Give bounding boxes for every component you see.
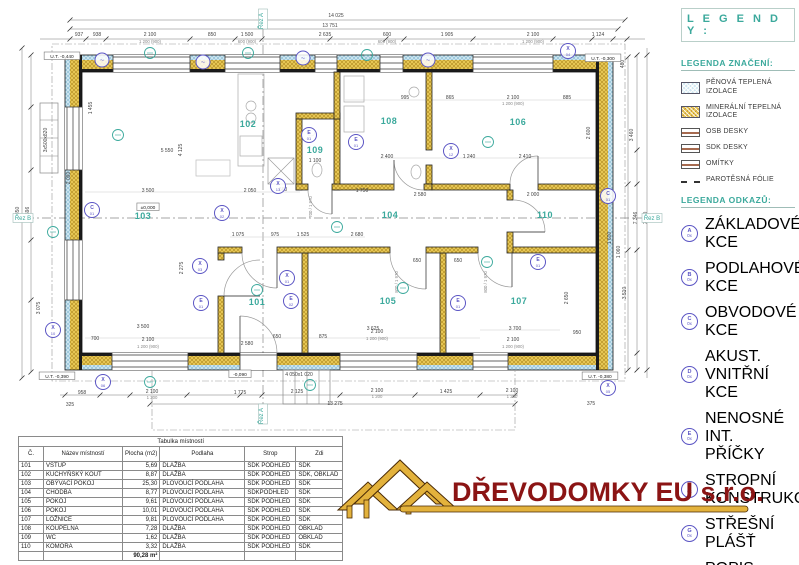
dim-label: 1 500 [241, 32, 254, 38]
table-cell: DLAŽBA [160, 471, 245, 480]
table-cell: POKOJ [44, 507, 123, 516]
dim-label: 700 / 1 970 [308, 196, 313, 218]
dim-label: 2 100 [507, 337, 520, 343]
dim-label: 2 600 [586, 127, 592, 140]
table-cell: 106 [19, 507, 44, 516]
dim-label: 2 635 [319, 32, 332, 38]
dim-label: 3 500 [142, 188, 155, 194]
legend-marks-list: PĚNOVÁ TEPLENÁ IZOLACEMINERÁLNÍ TEPELNÁ … [681, 79, 795, 185]
dim-label: 800 / 1 970 [394, 271, 399, 293]
terrace-line [152, 370, 515, 430]
door-arc [394, 160, 424, 190]
legend-item: PĚNOVÁ TEPLENÁ IZOLACE [681, 79, 795, 97]
company-logo: DŘEVODOMKY EU s.r.o. [330, 448, 795, 558]
table-cell: 5,69 [123, 462, 160, 471]
legend-refs-heading: LEGENDA ODKAZŮ: [681, 195, 795, 208]
dim-label: 700 [91, 336, 100, 342]
floor-plan-drawing: 14 02513 7519379382 1008501 5002 6356001… [0, 0, 680, 440]
dim-label: 1 200 (900) [137, 344, 160, 349]
ref-circle-icon: A0x [681, 225, 698, 242]
dim-label: 1 200 (900) [502, 344, 525, 349]
table-cell: KUCHYŇSKÝ KOUT [44, 471, 123, 480]
table-row: 107LOŽNICE9,81PLOVOUCÍ PODLAHASDK PODHLE… [19, 516, 343, 525]
table-header: Č. [19, 447, 44, 462]
svg-text:~: ~ [100, 58, 104, 65]
svg-text:01: 01 [90, 211, 95, 216]
table-cell: SDK PODHLED [245, 525, 296, 534]
dim-label: 600 [383, 32, 392, 38]
dim-label: 885 [563, 95, 572, 101]
dim-label: 1 525 [297, 232, 310, 238]
elevation-label: U.T. -0,380 [588, 374, 612, 380]
table-cell: 109 [19, 534, 44, 543]
table-cell: 1,62 [123, 534, 160, 543]
table-row: 110KOMORA3,32DLAŽBASDK PODHLEDSDK [19, 543, 343, 552]
svg-text:13: 13 [276, 187, 281, 192]
dim-label: 1 425 [440, 389, 453, 395]
dim-label: 5 550 [161, 148, 174, 154]
table-cell: VSTUP [44, 462, 123, 471]
svg-text:05: 05 [606, 389, 611, 394]
table-cell: PLOVOUCÍ PODLAHA [160, 507, 245, 516]
legend-ref-item: X0xPOPIS PRVKŮ [681, 560, 795, 565]
dim-label: 600 (900) [378, 39, 397, 44]
dim-label: 3 500 [137, 324, 150, 330]
table-header: Strop [245, 447, 296, 462]
legend-ref-label: PODLAHOVÉ KCE [705, 260, 799, 296]
elevation-label: -0,090 [233, 372, 247, 378]
dim-label: 1 060 [616, 246, 622, 259]
dim-label: 1 600 [607, 232, 613, 245]
table-cell: SDK PODHLED [245, 507, 296, 516]
svg-text:~: ~ [201, 60, 205, 67]
table-cell: 105 [19, 498, 44, 507]
table-cell: 8,87 [123, 471, 160, 480]
table-cell: SDKPODHLED [245, 489, 296, 498]
table-cell: 108 [19, 525, 44, 534]
room-number: 101 [249, 297, 266, 307]
door-arc [242, 253, 277, 288]
legend-item-label: SDK DESKY [706, 144, 748, 153]
dim-label: 2 100 [527, 32, 540, 38]
legend-item-label: OMÍTKY [706, 160, 734, 169]
dim-label: 1 200 [147, 395, 158, 400]
company-name: DŘEVODOMKY EU s.r.o. [452, 476, 764, 507]
table-row: 104CHODBA8,77PLOVOUCÍ PODLAHASDKPODHLEDS… [19, 489, 343, 498]
legend-ref-item: B0xPODLAHOVÉ KCE [681, 260, 795, 296]
table-cell: 7,28 [123, 525, 160, 534]
legend-ref-item: A0xZÁKLADOVÉ KCE [681, 216, 795, 252]
table-cell: DLAŽBA [160, 543, 245, 552]
sw-line-icon [681, 128, 700, 137]
table-cell: WC [44, 534, 123, 543]
room-number: 102 [240, 119, 257, 129]
dim-label: 4 125 [178, 144, 184, 157]
dim-label: 1 075 [232, 232, 245, 238]
section-label: Řez A [257, 408, 265, 424]
door-arc [510, 156, 538, 184]
dim-label: 1 455 [88, 102, 94, 115]
room-number: 103 [135, 211, 152, 221]
table-cell: KOUPELNA [44, 525, 123, 534]
dim-label: 800 / 1 970 [483, 271, 488, 293]
table-cell: 103 [19, 480, 44, 489]
dim-label: 865 [446, 95, 455, 101]
dim-label: 14 025 [328, 13, 344, 19]
legend-ref-label: ZÁKLADOVÉ KCE [705, 216, 799, 252]
dim-label: 875 [319, 334, 328, 340]
table-cell [160, 552, 245, 561]
room-number: 105 [380, 296, 397, 306]
svg-text:02: 02 [220, 214, 225, 219]
table-cell: SDK PODHLED [245, 480, 296, 489]
table-cell: 9,81 [123, 516, 160, 525]
svg-text:06: 06 [101, 383, 106, 388]
table-cell: POKOJ [44, 498, 123, 507]
dim-label: 1 124 [592, 32, 605, 38]
svg-text:01: 01 [285, 279, 290, 284]
table-cell: KOMORA [44, 543, 123, 552]
table-caption: Tabulka místností [19, 437, 343, 447]
svg-text:12: 12 [449, 152, 454, 157]
svg-text:01: 01 [354, 143, 359, 148]
dim-label: 1 200 [372, 394, 383, 399]
table-cell: 101 [19, 462, 44, 471]
dim-label: 2 090 [66, 172, 72, 185]
elevation-label: ±0,000 [141, 205, 156, 211]
section-label: Řez A [257, 13, 265, 29]
dim-label: 958 [78, 390, 87, 396]
dim-label: 995 [401, 95, 410, 101]
legend-item-label: OSB DESKY [706, 128, 748, 137]
table-cell: PLOVOUCÍ PODLAHA [160, 498, 245, 507]
legend-ref-item: C0xOBVODOVÉ KCE [681, 304, 795, 340]
svg-text:04: 04 [566, 52, 571, 57]
room-number: 104 [382, 210, 399, 220]
table-cell: SDK PODHLED [245, 471, 296, 480]
svg-text:01: 01 [307, 136, 312, 141]
dim-label: 950 [573, 330, 582, 336]
elevation-label: U.T. -0,300 [591, 56, 615, 62]
legend-item: SDK DESKY [681, 144, 795, 153]
table-row: 105POKOJ9,61PLOVOUCÍ PODLAHASDK PODHLEDS… [19, 498, 343, 507]
dim-label: 600 (900) [238, 39, 257, 44]
dim-label: 2 580 [241, 341, 254, 347]
dim-label: 2 100 [142, 337, 155, 343]
dim-label: 1 200 (900) [139, 39, 162, 44]
ref-circle-icon: E0x [681, 428, 698, 445]
svg-text:10: 10 [51, 331, 56, 336]
ref-circle-icon: C0x [681, 313, 698, 330]
legend-marks-heading: LEGENDA ZNAČENÍ: [681, 58, 795, 71]
table-header: Plocha (m2) [123, 447, 160, 462]
dim-label: 2 275 [179, 262, 185, 275]
legend-item: OMÍTKY [681, 160, 795, 169]
ref-circle-icon: D0x [681, 366, 698, 383]
table-row: 101VSTUP5,69DLAŽBASDK PODHLEDSDK [19, 462, 343, 471]
table-cell [19, 552, 44, 561]
table-row: 102KUCHYŇSKÝ KOUT8,87DLAŽBASDK PODHLEDSD… [19, 471, 343, 480]
table-cell: SDK PODHLED [245, 462, 296, 471]
dim-label: 325 [66, 402, 75, 408]
table-total-row: 90,28 m² [19, 552, 343, 561]
table-cell: CHODBA [44, 489, 123, 498]
dim-label: 3 460 [629, 129, 635, 142]
svg-text:01: 01 [456, 304, 461, 309]
table-cell: DLAŽBA [160, 462, 245, 471]
dim-label: 4 050x1 020 [285, 372, 313, 378]
dim-label: 650 [273, 334, 282, 340]
svg-text:01: 01 [606, 197, 611, 202]
table-cell: 9,61 [123, 498, 160, 507]
sw-line-icon [681, 144, 700, 153]
dim-label: 938 [93, 32, 102, 38]
dim-label: 2 100 [371, 329, 384, 335]
table-row: 106POKOJ10,01PLOVOUCÍ PODLAHASDK PODHLED… [19, 507, 343, 516]
sw-line-icon [681, 160, 700, 169]
svg-text:01: 01 [199, 304, 204, 309]
room-number: 110 [537, 210, 553, 220]
table-cell [44, 552, 123, 561]
legend-item-label: PĚNOVÁ TEPLENÁ IZOLACE [706, 79, 795, 97]
table-cell: DLAŽBA [160, 525, 245, 534]
dim-label: 1 200 (900) [522, 39, 545, 44]
dim-label: 650 [454, 258, 463, 264]
svg-text:01: 01 [536, 263, 541, 268]
dim-label: 3 075 [36, 302, 42, 315]
dim-label: 3 700 [509, 326, 522, 332]
elevation-label: U.T. -0,390 [45, 374, 69, 380]
dim-label: 7 346 [633, 212, 639, 225]
room-number: 107 [511, 296, 528, 306]
dim-label: 2 410 [519, 154, 532, 160]
floorplan-sheet: { "colors":{"teal":"#3BA99C","purple":"#… [0, 0, 799, 565]
legend-item: OSB DESKY [681, 128, 795, 137]
svg-text:02: 02 [289, 302, 294, 307]
table-cell: SDK PODHLED [245, 516, 296, 525]
dim-label: 2 125 [291, 389, 304, 395]
table-cell: PLOVOUCÍ PODLAHA [160, 480, 245, 489]
dim-label: 2 400 [381, 154, 394, 160]
dim-label: 2 650 [564, 292, 570, 305]
table-cell: DLAŽBA [160, 534, 245, 543]
room-table: Tabulka místnostíČ.Název místnostíPlocha… [18, 436, 343, 561]
svg-text:03: 03 [198, 267, 203, 272]
table-cell: PLOVOUCÍ PODLAHA [160, 516, 245, 525]
section-label: Řez B [644, 214, 660, 222]
dim-label: 1 200 (900) [502, 101, 525, 106]
dim-label: 1 240 [463, 154, 476, 160]
table-cell: LOŽNICE [44, 516, 123, 525]
dim-label: 850 [208, 32, 217, 38]
svg-text:~: ~ [301, 56, 305, 63]
table-total: 90,28 m² [123, 552, 160, 561]
legend-item: MINERÁLNÍ TEPELNÁ IZOLACE [681, 104, 795, 122]
room-number: 106 [510, 117, 527, 127]
dim-label: 2 050 [244, 188, 257, 194]
dim-label: 3x500x820 [43, 128, 49, 153]
table-row: 103OBÝVACÍ POKOJ25,30PLOVOUCÍ PODLAHASDK… [19, 480, 343, 489]
table-cell [245, 552, 296, 561]
table-cell: 104 [19, 489, 44, 498]
dim-label: 937 [75, 32, 84, 38]
dim-label: 1 905 [441, 32, 454, 38]
table-row: 108KOUPELNA7,28DLAŽBASDK PODHLEDOBKLAD [19, 525, 343, 534]
table-header: Podlaha [160, 447, 245, 462]
dim-label: 13 275 [327, 401, 343, 407]
dim-label: 3 510 [622, 287, 628, 300]
table-cell: 107 [19, 516, 44, 525]
dim-label: 1 200 [507, 394, 518, 399]
dim-label: 1 775 [234, 390, 247, 396]
legend-ref-label: OBVODOVÉ KCE [705, 304, 797, 340]
table-cell: 3,32 [123, 543, 160, 552]
legend-item-label: MINERÁLNÍ TEPELNÁ IZOLACE [706, 104, 795, 122]
plan-geometry [20, 18, 663, 431]
table-cell: 10,01 [123, 507, 160, 516]
legend-ref-label: POPIS PRVKŮ [705, 560, 795, 565]
table-cell: 25,30 [123, 480, 160, 489]
dim-label: 650 [413, 258, 422, 264]
door-arc [240, 316, 277, 353]
legend-ref-label: AKUST. VNITŘNÍ KCE [705, 348, 795, 402]
room-number: 108 [381, 116, 398, 126]
dim-label: 975 [271, 232, 280, 238]
table-cell: OBÝVACÍ POKOJ [44, 480, 123, 489]
sw-foil-icon [681, 181, 700, 183]
dim-label: 2 100 [144, 32, 157, 38]
section-label: Řez B [15, 214, 31, 222]
table-cell: SDK PODHLED [245, 534, 296, 543]
dim-label: 2 580 [414, 192, 427, 198]
table-cell: PLOVOUCÍ PODLAHA [160, 489, 245, 498]
dim-label: 2 000 [527, 192, 540, 198]
dim-label: 1 750 [356, 188, 369, 194]
legend-title: L E G E N D Y : [681, 8, 795, 42]
svg-text:~: ~ [426, 58, 430, 65]
legend-item: PAROTĚSNÁ FÓLIE [681, 176, 795, 185]
dim-label: 375 [587, 401, 596, 407]
table-cell: 102 [19, 471, 44, 480]
dim-label: 13 751 [322, 23, 338, 29]
elevation-label: U.T. -0,440 [50, 54, 74, 60]
ref-circle-icon: B0x [681, 269, 698, 286]
table-row: 109WC1,62DLAŽBASDK PODHLEDOBKLAD [19, 534, 343, 543]
table-cell: SDK PODHLED [245, 498, 296, 507]
table-cell: 8,77 [123, 489, 160, 498]
table-cell: 110 [19, 543, 44, 552]
table-header: Název místností [44, 447, 123, 462]
dim-label: 2 680 [351, 232, 364, 238]
sw-foam-icon [681, 82, 700, 94]
legend-item-label: PAROTĚSNÁ FÓLIE [706, 176, 774, 185]
door-arc [224, 260, 260, 296]
dim-label: 1 100 [309, 158, 322, 164]
room-number: 109 [307, 145, 324, 155]
table-cell: SDK PODHLED [245, 543, 296, 552]
sw-min-icon [681, 106, 700, 118]
dim-label: 1 200 (900) [366, 336, 389, 341]
legend-ref-item: D0xAKUST. VNITŘNÍ KCE [681, 348, 795, 402]
